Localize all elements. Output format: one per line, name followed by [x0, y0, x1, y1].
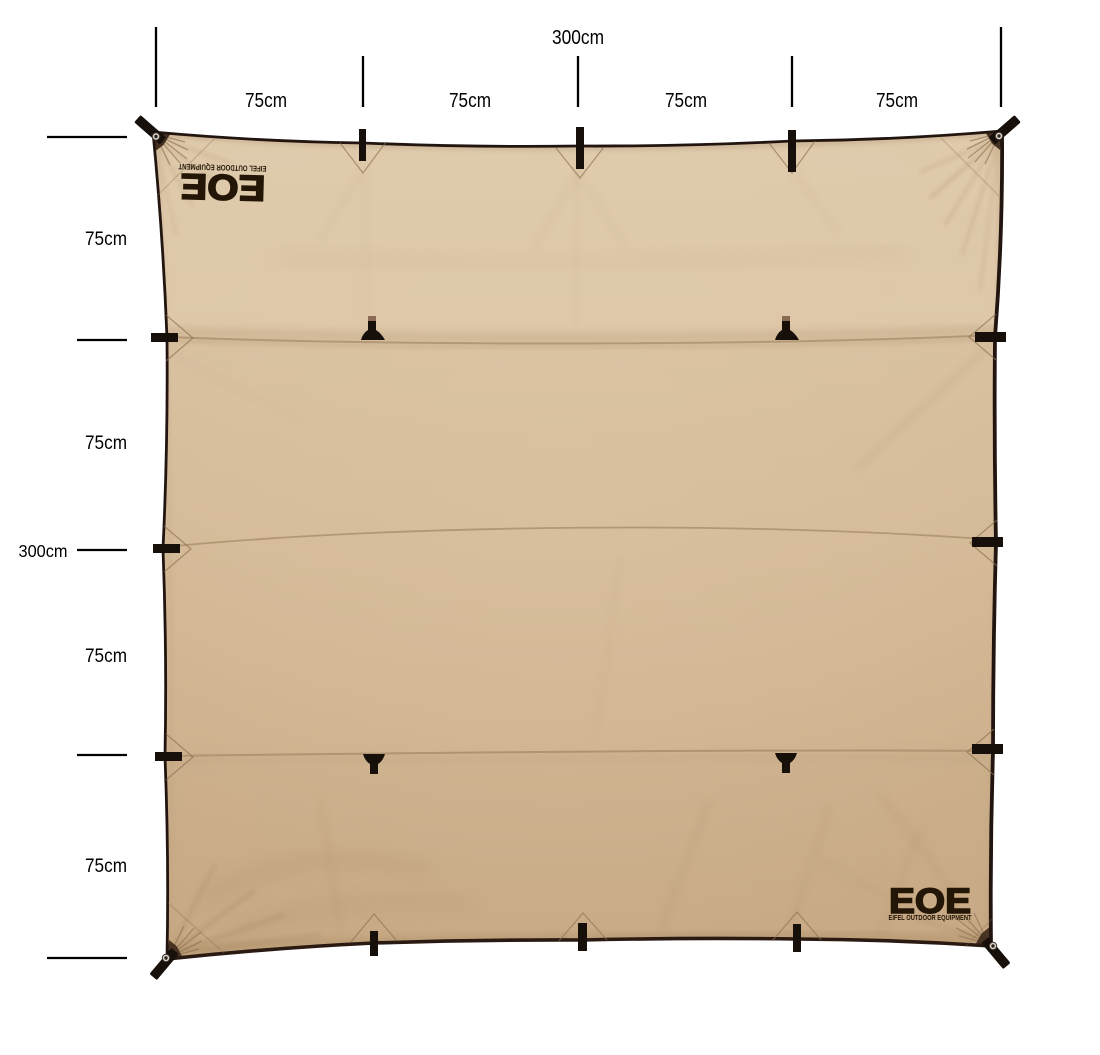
svg-text:75cm: 75cm [876, 90, 918, 112]
svg-text:300cm: 300cm [19, 541, 68, 561]
svg-text:75cm: 75cm [245, 90, 287, 112]
svg-text:EIFEL OUTDOOR EQUIPMENT: EIFEL OUTDOOR EQUIPMENT [889, 915, 973, 922]
svg-text:75cm: 75cm [85, 646, 127, 667]
svg-text:75cm: 75cm [85, 229, 127, 250]
svg-text:300cm: 300cm [552, 27, 604, 49]
svg-text:75cm: 75cm [665, 90, 707, 112]
svg-text:75cm: 75cm [85, 856, 127, 877]
svg-text:75cm: 75cm [449, 90, 491, 112]
svg-text:75cm: 75cm [85, 433, 127, 454]
